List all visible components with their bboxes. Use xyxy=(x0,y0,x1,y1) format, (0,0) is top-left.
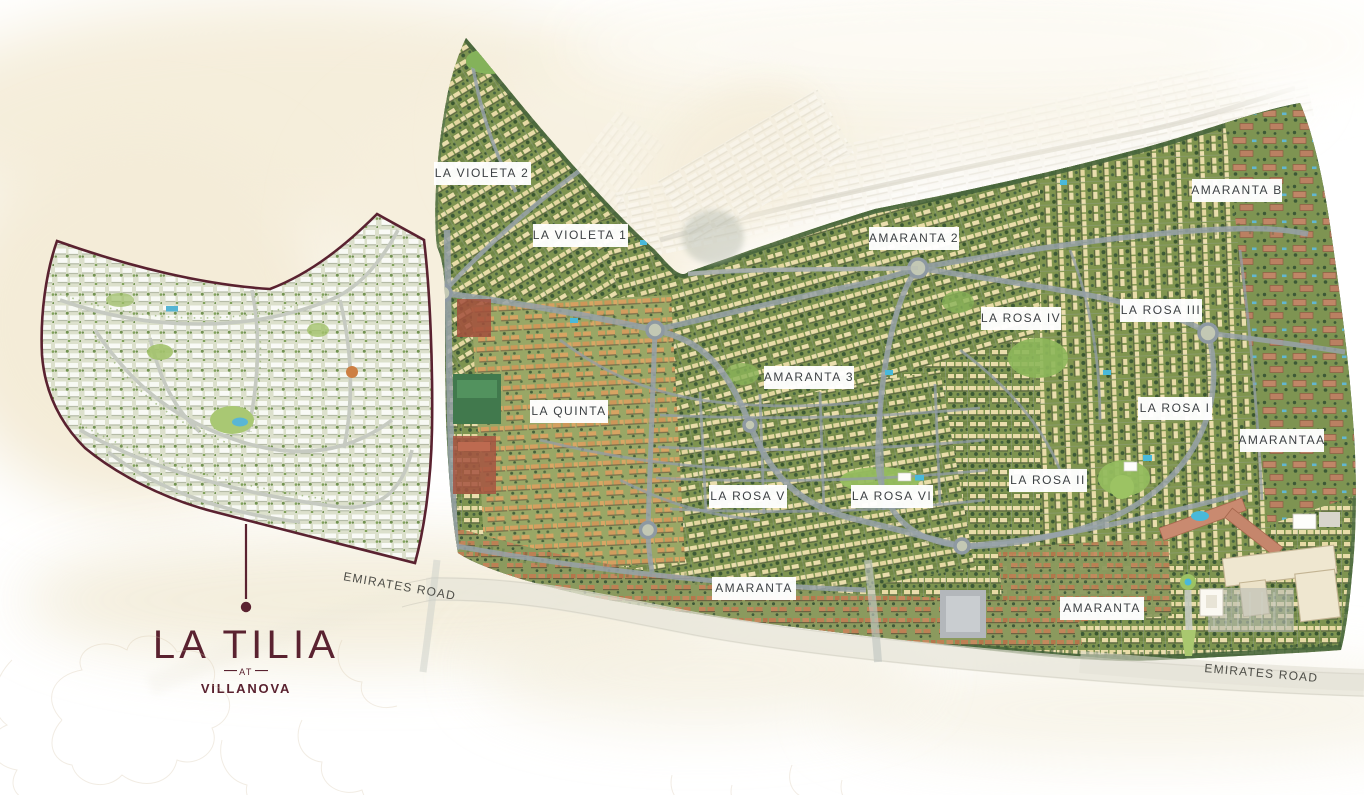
svg-text:AMARANTAA: AMARANTAA xyxy=(1238,433,1325,447)
svg-text:LA ROSA III: LA ROSA III xyxy=(1121,303,1202,317)
svg-text:LA VIOLETA 2: LA VIOLETA 2 xyxy=(435,166,530,180)
svg-text:AMARANTA B: AMARANTA B xyxy=(1191,183,1282,197)
svg-text:AMARANTA: AMARANTA xyxy=(715,581,793,595)
svg-text:LA ROSA II: LA ROSA II xyxy=(1010,473,1086,487)
svg-text:LA ROSA V: LA ROSA V xyxy=(710,489,786,503)
svg-text:AMARANTA 2: AMARANTA 2 xyxy=(869,231,959,245)
svg-text:AT: AT xyxy=(239,667,253,677)
svg-text:LA TILIA: LA TILIA xyxy=(153,623,339,667)
svg-text:LA ROSA VI: LA ROSA VI xyxy=(852,489,932,503)
svg-text:LA ROSA IV: LA ROSA IV xyxy=(981,311,1061,325)
svg-text:VILLANOVA: VILLANOVA xyxy=(201,681,291,696)
svg-text:LA ROSA I: LA ROSA I xyxy=(1140,401,1211,415)
svg-text:AMARANTA 3: AMARANTA 3 xyxy=(764,370,854,384)
svg-text:LA QUINTA: LA QUINTA xyxy=(531,404,606,418)
svg-text:LA VIOLETA 1: LA VIOLETA 1 xyxy=(533,228,628,242)
svg-text:AMARANTA: AMARANTA xyxy=(1063,601,1141,615)
